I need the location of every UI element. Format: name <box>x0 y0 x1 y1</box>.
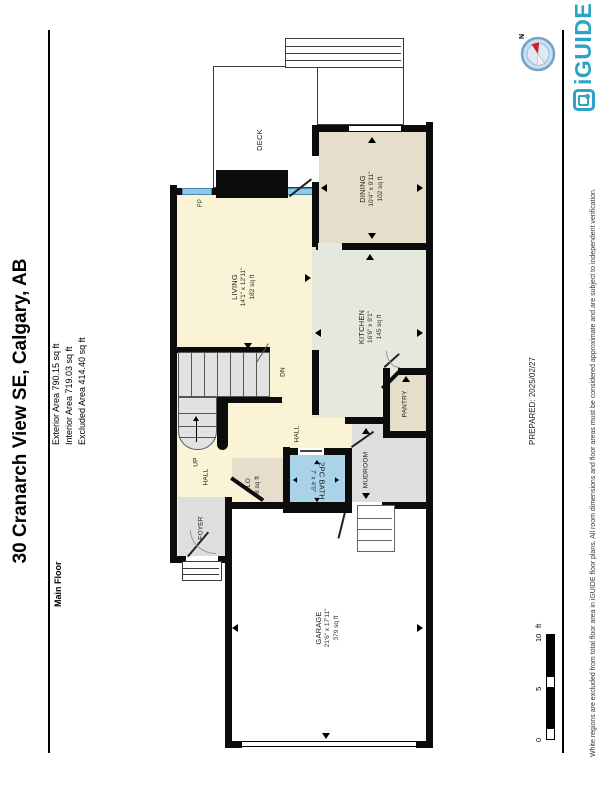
dim-arrow <box>322 733 330 739</box>
header-rule <box>48 30 50 753</box>
mudroom-label: MUDROOM <box>363 452 372 488</box>
deck-door-opening <box>312 156 319 182</box>
dn-tread <box>191 353 192 396</box>
scale-segment <box>547 687 554 729</box>
closet-label: CLO 8 sq ft <box>245 476 263 494</box>
dim-arrow <box>368 233 376 239</box>
up-arrow-head <box>193 416 199 421</box>
deck-stair-tread <box>286 53 401 54</box>
wall-bath-c <box>345 447 352 513</box>
disclaimer-text: White regions are excluded from total fl… <box>590 188 597 757</box>
dim-arrow <box>244 343 252 349</box>
wall-mudroom-kitchen <box>345 417 385 424</box>
foyer-label: FOYER <box>198 516 207 539</box>
dn-tread <box>243 353 244 396</box>
floor-label: Main Floor <box>53 562 63 608</box>
dim-arrow <box>362 428 370 434</box>
patio-door <box>348 126 402 131</box>
excluded-area-stat: Excluded Area 414.40 sq ft <box>77 337 87 445</box>
stair-railing <box>217 397 228 450</box>
garage-door <box>242 741 416 747</box>
compass: N <box>512 28 560 76</box>
dim-arrow <box>321 184 327 192</box>
hall-label-a: HALL <box>203 468 212 485</box>
interior-area-stat: Interior Area 719.03 sq ft <box>64 346 74 445</box>
dim-arrow <box>232 624 238 632</box>
up-arrow-stem <box>196 420 197 442</box>
iguide-logo: iGUIDE <box>570 3 597 111</box>
dim-arrow <box>417 624 423 632</box>
dn-tread <box>217 353 218 396</box>
wall-dining-living <box>312 125 319 247</box>
dim-arrow <box>315 329 321 337</box>
front-step-line <box>183 568 219 569</box>
dining-kitchen-opening <box>318 243 342 250</box>
fireplace <box>216 170 288 198</box>
dim-arrow <box>368 137 376 143</box>
dim-arrow <box>305 274 311 282</box>
dim-arrow <box>362 493 370 499</box>
mudroom-door-opening <box>345 424 352 448</box>
page-title: 30 Cranarch View SE, Calgary, AB <box>10 30 32 792</box>
dim-arrow <box>417 184 423 192</box>
pantry-label: PANTRY <box>402 391 411 418</box>
kitchen-label: KITCHEN 16'6" x 9'1" 145 sq ft <box>357 310 385 344</box>
dn-tread <box>230 353 231 396</box>
scale-bar <box>546 634 555 740</box>
up-tread <box>179 426 216 427</box>
dim-arrow <box>366 254 374 260</box>
wall-garage-door-jamb <box>416 741 433 748</box>
deck-stair-tread <box>286 46 401 47</box>
scale-tick-5: 5 <box>534 687 543 691</box>
dining-label: DINING 10'4" x 9'11" 102 sq ft <box>358 171 386 206</box>
dim-arrow <box>335 477 339 483</box>
living-label: LIVING 14'1" x 12'11" 182 sq ft <box>230 268 258 307</box>
deck-label: DECK <box>255 129 265 151</box>
dn-label: DN <box>280 367 289 377</box>
garage-label: GARAGE 21'6" x 17'11" 379 sq ft <box>314 609 342 648</box>
wall-bath-b <box>283 447 290 513</box>
wall-pantry-c <box>398 368 426 375</box>
bath-label: 2PC BATH 7' x 4'9" <box>308 462 327 500</box>
wall-garage-door-jamb <box>226 741 242 748</box>
garage-step-line <box>358 529 392 530</box>
floorplan-page: 30 Cranarch View SE, Calgary, AB Main Fl… <box>0 0 612 792</box>
wall-bath-a <box>283 506 352 513</box>
wall-pantry-b <box>383 431 426 438</box>
wall-exterior-left <box>170 185 177 563</box>
living-window <box>182 188 212 195</box>
iguide-logo-icon <box>573 89 595 111</box>
hall-label-b: HALL <box>294 425 303 442</box>
footer-rule <box>562 30 564 753</box>
scale-tick-10: 10 <box>534 634 543 642</box>
wall-garage-side-a <box>225 502 232 748</box>
garage-step-line <box>358 518 392 519</box>
scale-segment <box>547 635 554 677</box>
dim-arrow <box>417 329 423 337</box>
rotated-canvas: 30 Cranarch View SE, Calgary, AB Main Fl… <box>0 0 612 792</box>
up-label: UP <box>193 457 202 466</box>
scale-unit: ft <box>534 624 543 628</box>
prepared-date: PREPARED: 2025/02/27 <box>528 357 537 445</box>
dn-tread <box>204 353 205 396</box>
up-tread <box>179 437 216 438</box>
wall-kitchen-hall <box>312 350 319 415</box>
deck-join-patch <box>215 122 314 126</box>
front-step-line <box>183 574 219 575</box>
wall-exterior-right <box>426 122 433 512</box>
exterior-area-stat: Exterior Area 790.15 sq ft <box>51 343 61 445</box>
front-steps <box>182 561 222 581</box>
scale-tick-0: 0 <box>534 738 543 742</box>
dim-arrow <box>293 477 297 483</box>
compass-north-label: N <box>519 34 526 39</box>
wall-garage-side-b <box>426 502 433 748</box>
deck-stair-tread <box>286 60 401 61</box>
bath-pocket-door <box>300 451 322 453</box>
fireplace-label: FP <box>197 199 205 207</box>
stair-landing <box>178 397 217 413</box>
dim-arrow <box>402 376 410 382</box>
garage-step-line <box>358 540 392 541</box>
iguide-logo-text: iGUIDE <box>570 3 597 85</box>
